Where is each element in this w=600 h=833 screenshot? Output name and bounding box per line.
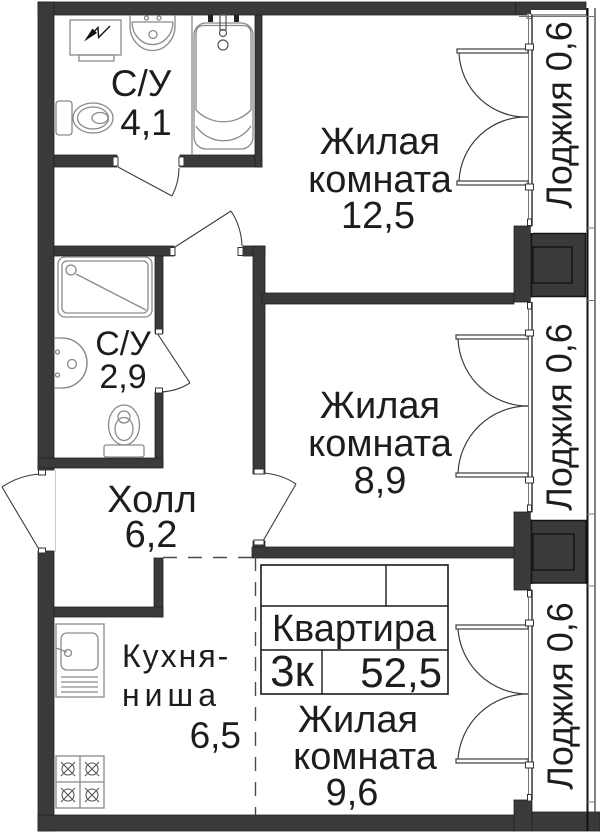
svg-text:Лоджия 0,6: Лоджия 0,6 [539,323,580,511]
svg-text:Жилая: Жилая [298,699,418,741]
svg-text:6,2: 6,2 [125,514,178,556]
svg-text:ниша: ниша [122,677,221,713]
svg-text:9,6: 9,6 [326,772,379,814]
svg-text:Лоджия 0,6: Лоджия 0,6 [540,602,581,790]
svg-text:Квартира: Квартира [272,608,437,650]
svg-text:2,9: 2,9 [99,358,146,396]
svg-text:3к: 3к [270,647,314,696]
svg-text:Жилая: Жилая [320,121,440,163]
svg-text:Лоджия 0,6: Лоджия 0,6 [539,21,580,209]
svg-text:С/У: С/У [111,63,172,104]
svg-text:6,5: 6,5 [190,715,241,756]
svg-text:Кухня-: Кухня- [122,638,230,674]
svg-text:4,1: 4,1 [120,102,171,143]
svg-text:комната: комната [308,423,453,465]
svg-text:12,5: 12,5 [341,195,415,237]
svg-text:Жилая: Жилая [320,385,440,427]
svg-text:8,9: 8,9 [354,460,407,502]
svg-text:52,5: 52,5 [360,649,442,696]
